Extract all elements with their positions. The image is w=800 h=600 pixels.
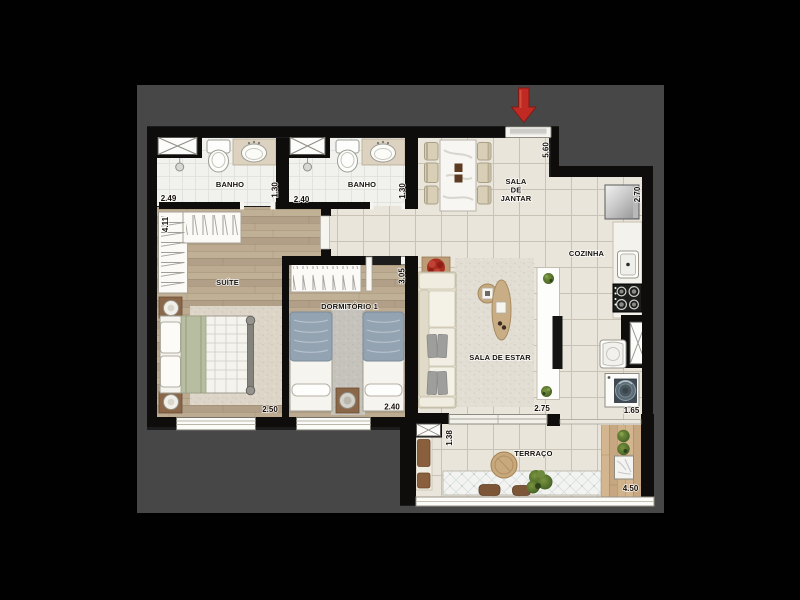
svg-text:BANHO: BANHO xyxy=(216,180,244,189)
svg-text:BANHO: BANHO xyxy=(348,180,376,189)
svg-text:4.50: 4.50 xyxy=(623,484,639,493)
svg-text:2.70: 2.70 xyxy=(633,186,642,202)
svg-text:JANTAR: JANTAR xyxy=(501,194,532,203)
svg-text:2.40: 2.40 xyxy=(294,195,310,204)
svg-text:1.30: 1.30 xyxy=(398,183,407,199)
svg-text:2.75: 2.75 xyxy=(534,404,550,413)
svg-text:4.11: 4.11 xyxy=(161,216,170,232)
svg-text:2.49: 2.49 xyxy=(161,194,177,203)
svg-text:TERRAÇO: TERRAÇO xyxy=(514,449,552,458)
svg-text:COZINHA: COZINHA xyxy=(569,249,605,258)
svg-text:1.65: 1.65 xyxy=(624,406,640,415)
svg-text:SUÍTE: SUÍTE xyxy=(216,278,239,287)
svg-text:5.60: 5.60 xyxy=(542,142,551,158)
svg-text:2.50: 2.50 xyxy=(262,405,278,414)
svg-text:3.05: 3.05 xyxy=(398,268,407,284)
svg-text:1.38: 1.38 xyxy=(445,430,454,446)
svg-text:2.40: 2.40 xyxy=(384,403,400,412)
svg-text:SALA DE ESTAR: SALA DE ESTAR xyxy=(469,353,531,362)
svg-text:DORMITÓRIO 1: DORMITÓRIO 1 xyxy=(321,302,378,311)
svg-text:1.30: 1.30 xyxy=(271,182,280,198)
